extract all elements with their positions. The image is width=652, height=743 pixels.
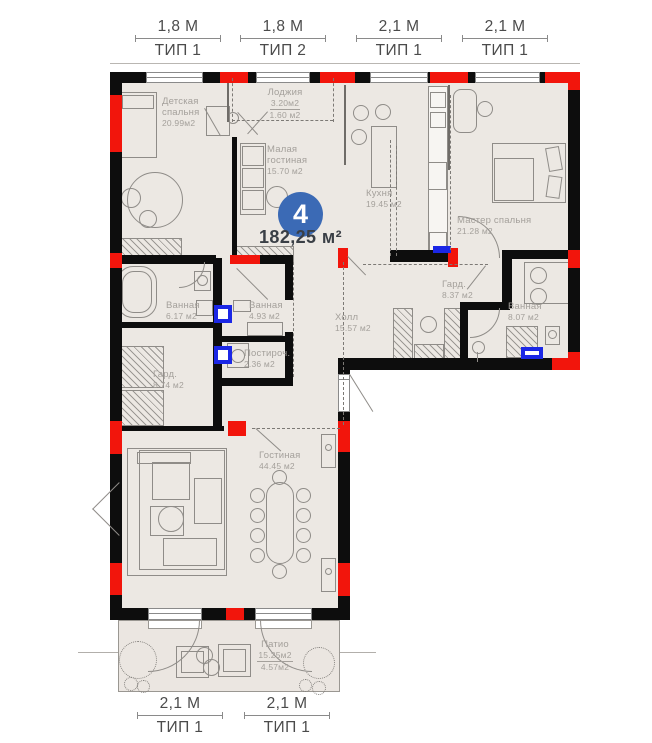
structural-column — [226, 608, 244, 620]
structural-column — [568, 250, 580, 268]
window — [146, 72, 203, 83]
dashed-partition — [252, 428, 340, 429]
dashed-partition — [363, 264, 488, 265]
structural-column — [110, 253, 122, 268]
window — [475, 72, 540, 83]
room-label-living-room: Гостиная 44.45 м2 — [259, 450, 300, 472]
sink-icon — [530, 267, 547, 284]
structural-column — [568, 72, 580, 90]
bush-icon — [124, 677, 138, 691]
partition-wall — [344, 85, 346, 165]
wall-segment — [110, 72, 122, 620]
chair-icon — [296, 488, 311, 503]
pillow-icon — [122, 95, 154, 109]
room-label-kitchen: Кухня 19.45 м2 — [366, 188, 402, 210]
wall-segment — [213, 378, 293, 386]
window — [256, 72, 310, 83]
structural-column — [110, 95, 122, 152]
window — [338, 374, 350, 412]
cushion-icon — [242, 146, 264, 166]
door-leaf — [477, 352, 478, 362]
wall-segment — [110, 426, 224, 431]
cushion-icon — [242, 190, 264, 210]
plumbing-riser — [521, 347, 543, 359]
wall-segment — [285, 258, 293, 300]
side-table-icon — [158, 506, 184, 532]
wall-segment — [232, 137, 237, 255]
structural-column — [110, 421, 122, 454]
radiator-icon — [321, 434, 336, 468]
chair-icon — [250, 548, 265, 563]
window — [370, 72, 428, 83]
radiator-icon — [321, 558, 336, 592]
structural-column — [545, 72, 570, 83]
chair-icon — [375, 104, 391, 120]
stove-icon — [428, 162, 447, 190]
chair-icon — [272, 564, 287, 579]
desk-icon — [453, 89, 477, 133]
bathtub-icon — [122, 271, 152, 313]
mirror-icon — [477, 101, 493, 117]
toilet-icon — [548, 330, 557, 339]
blanket-icon — [494, 158, 534, 201]
structural-column — [338, 421, 350, 452]
structural-column — [430, 72, 468, 83]
wall-segment — [460, 302, 468, 362]
plumbing-riser — [433, 246, 451, 253]
wardrobe-icon — [116, 390, 164, 426]
plumbing-riser — [214, 305, 232, 323]
dining-table-icon — [371, 126, 397, 188]
vanity-icon — [247, 322, 283, 336]
structural-column — [552, 358, 580, 370]
appliance-icon — [430, 92, 446, 108]
footstool-icon — [163, 538, 217, 566]
chair-icon — [351, 129, 367, 145]
dashed-partition — [343, 262, 344, 425]
plan-geometry — [0, 0, 652, 743]
bush-icon — [312, 681, 326, 695]
chair-icon — [296, 548, 311, 563]
room-label-wardrobe-1: Гард. 8.37 м2 — [442, 279, 473, 301]
pot-icon — [203, 659, 220, 676]
appliance-icon — [430, 112, 446, 128]
room-label-laundry: Постироч. 2.36 м2 — [244, 348, 290, 370]
floor-plan: 1,8 М ТИП 1 1,8 М ТИП 2 2,1 М ТИП 1 2,1 … — [0, 0, 652, 743]
chair-icon — [272, 470, 287, 485]
chair-icon — [353, 105, 369, 121]
chair-icon — [296, 508, 311, 523]
door-leaf — [349, 374, 373, 412]
room-label-bathroom-3: Ванная 8.07 м2 — [508, 301, 542, 323]
dashed-partition — [333, 78, 334, 122]
plumbing-riser — [214, 346, 232, 364]
radiator-icon — [325, 444, 332, 451]
room-label-hall: Холл 15.57 м2 — [335, 312, 371, 334]
radiator-icon — [325, 568, 332, 575]
structural-column — [110, 563, 122, 595]
room-label-bathroom-2: Ванная 4.93 м2 — [249, 300, 283, 322]
window-sill-line — [110, 63, 580, 64]
washer-door-icon — [231, 349, 245, 363]
window — [255, 608, 312, 620]
window — [148, 608, 202, 620]
wall-segment — [215, 336, 287, 342]
cushion-icon — [194, 478, 222, 524]
room-label-bathroom-1: Ванная 6.17 м2 — [166, 300, 200, 322]
dining-table-icon — [266, 482, 294, 564]
chair-icon — [250, 508, 265, 523]
closet-icon — [393, 308, 413, 364]
total-area-label: 182,25 м² — [259, 227, 342, 248]
planter-icon — [223, 649, 246, 672]
dashed-partition — [450, 95, 451, 250]
dashed-partition — [232, 78, 233, 122]
wall-segment — [502, 250, 512, 308]
dashed-partition — [293, 262, 294, 377]
beanbag-icon — [139, 210, 157, 228]
structural-column — [338, 563, 350, 596]
room-label-loggia: Лоджия 3.20м2 1.60 м2 — [254, 87, 316, 121]
wall-segment — [213, 378, 222, 426]
structural-column — [228, 421, 246, 436]
coat-stand-icon — [472, 341, 485, 354]
room-label-small-living: Малая гостиная 15.70 м2 — [267, 144, 307, 177]
structural-column — [320, 72, 355, 83]
beanbag-icon — [121, 188, 141, 208]
chair-icon — [296, 528, 311, 543]
ground-line — [78, 652, 118, 653]
cushion-icon — [242, 168, 264, 188]
chair-icon — [250, 488, 265, 503]
unit-number: 4 — [293, 199, 308, 230]
chair-icon — [250, 528, 265, 543]
ground-line — [340, 652, 376, 653]
room-label-patio: Патио 15.25м2 4.57м2 — [244, 639, 306, 673]
room-label-master-bedroom: Мастер спальня 21.28 м2 — [457, 215, 531, 237]
structural-column — [230, 255, 260, 264]
bush-icon — [299, 679, 312, 692]
room-label-child-bedroom: Детская спальня 20.99м2 — [162, 96, 199, 129]
wall-segment — [568, 72, 580, 370]
structural-column — [220, 72, 248, 83]
room-label-wardrobe-2: Гард. 8.74 м2 — [153, 369, 184, 391]
cushion-icon — [152, 462, 190, 500]
bush-icon — [137, 680, 150, 693]
decor-icon — [420, 316, 437, 333]
wall-segment — [110, 322, 214, 328]
